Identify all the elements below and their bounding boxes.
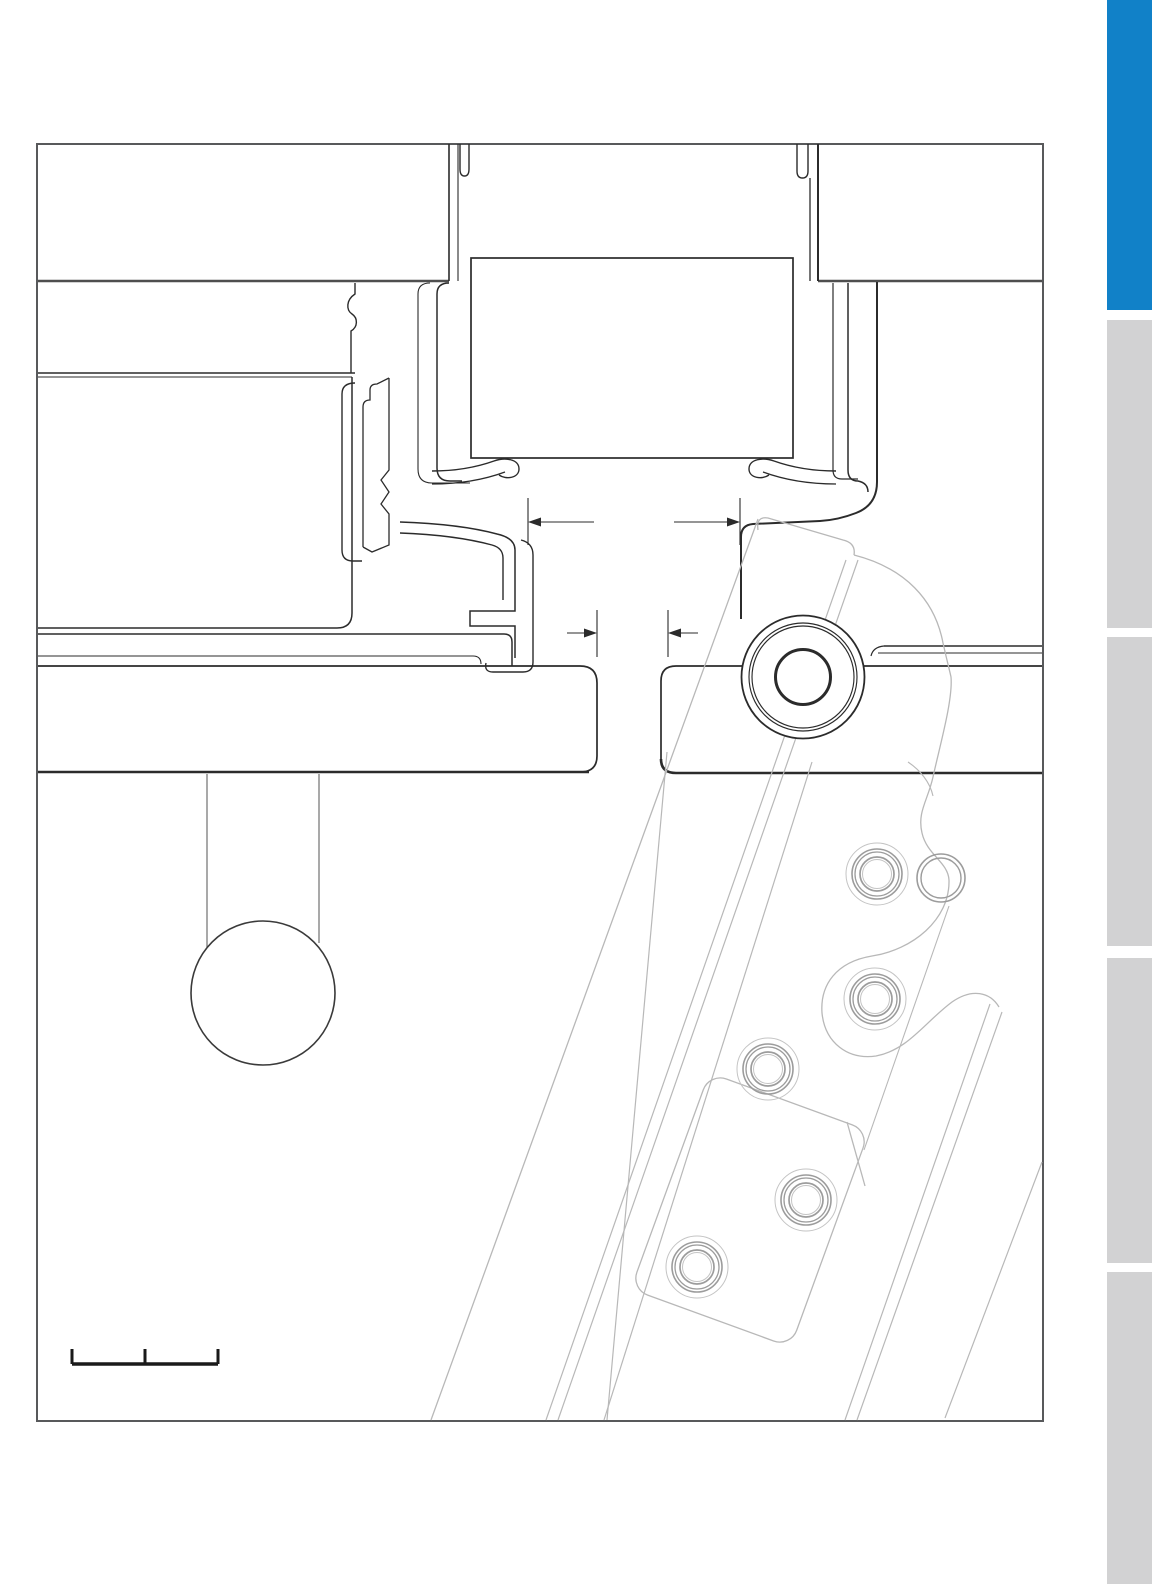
sidebar-tab-5[interactable] [1107, 1272, 1152, 1584]
sidebar-tab-3[interactable] [1107, 637, 1152, 946]
sidebar-tab-1[interactable] [1107, 0, 1152, 310]
brochure-page [0, 0, 1152, 1584]
drawing-frame-border [37, 144, 1043, 1421]
technical-drawing-canvas [0, 0, 1152, 1584]
hinge-pin [742, 616, 865, 739]
sidebar-tab-4[interactable] [1107, 958, 1152, 1263]
sidebar-tab-2[interactable] [1107, 320, 1152, 628]
page-index-tabs [1107, 0, 1152, 1584]
